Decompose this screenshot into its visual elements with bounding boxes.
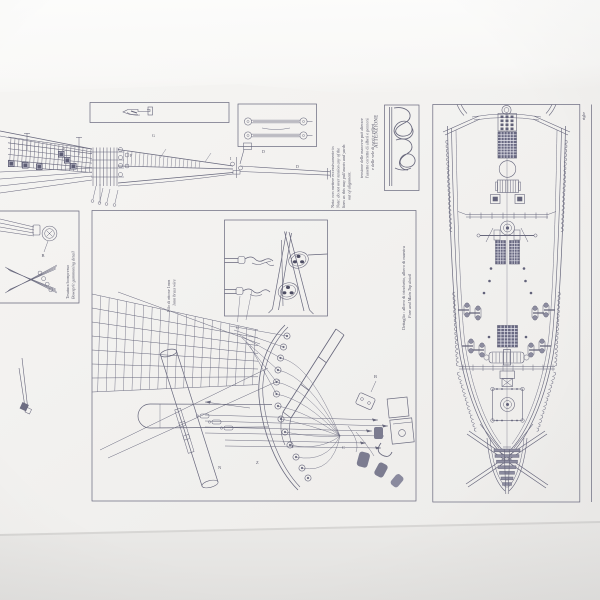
svg-text:Note: do not over tension any: Note: do not over tension any of the (336, 148, 341, 209)
svg-text:D: D (296, 164, 299, 169)
svg-text:1mm brass wire: 1mm brass wire (172, 279, 177, 306)
svg-text:tensione delle manovre può alt: tensione delle manovre può alterare (359, 118, 364, 178)
svg-text:C: C (342, 445, 345, 450)
svg-text:B: B (374, 374, 377, 379)
svg-text:G: G (152, 133, 155, 138)
svg-text:B: B (42, 253, 45, 258)
svg-text:C: C (236, 325, 239, 330)
svg-text:out of alignment.: out of alignment. (347, 172, 352, 201)
svg-text:Z: Z (256, 460, 259, 465)
svg-text:ATTENZIONE: ATTENZIONE (375, 114, 380, 148)
svg-text:Tesatura bompresso: Tesatura bompresso (65, 265, 70, 299)
svg-text:righe: righe (582, 112, 586, 120)
svg-text:Nota: non mettere eccessivamen: Nota: non mettere eccessivamente in (330, 145, 335, 208)
svg-text:l'assetto corretto di alberi e: l'assetto corretto di alberi e pennoni (365, 117, 370, 178)
svg-text:Fore and Main Top detail: Fore and Main Top detail (407, 273, 412, 319)
svg-text:lines as this may pull masts a: lines as this may pull masts and yards (341, 144, 346, 208)
svg-text:Bowsprit gammoning detail: Bowsprit gammoning detail (71, 250, 76, 299)
svg-text:D: D (262, 149, 265, 154)
svg-text:Filo di ottone 1mm: Filo di ottone 1mm (166, 279, 171, 312)
